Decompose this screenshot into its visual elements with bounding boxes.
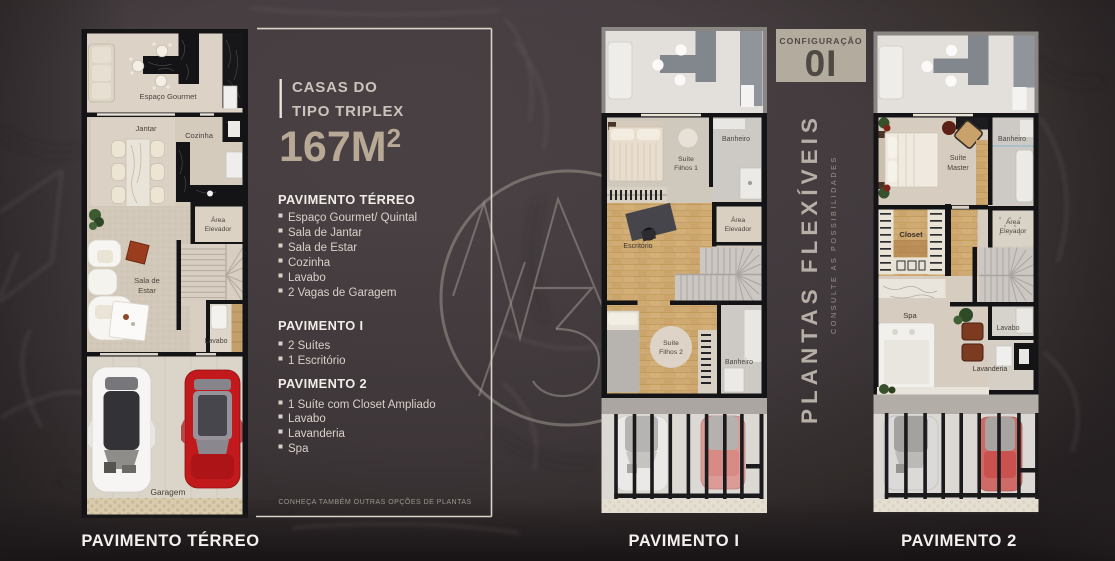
svg-text:Jantar: Jantar bbox=[135, 124, 157, 133]
svg-text:PAVIMENTO TÉRREO: PAVIMENTO TÉRREO bbox=[278, 192, 415, 207]
svg-text:Escritório: Escritório bbox=[623, 243, 652, 250]
svg-text:1 Escritório: 1 Escritório bbox=[288, 355, 346, 367]
svg-text:Espaço Gourmet: Espaço Gourmet bbox=[140, 92, 198, 101]
svg-text:Suíte: Suíte bbox=[663, 340, 679, 347]
svg-text:PAVIMENTO I: PAVIMENTO I bbox=[278, 318, 363, 333]
svg-text:Banheiro: Banheiro bbox=[998, 136, 1026, 143]
svg-text:Lavabo: Lavabo bbox=[288, 272, 326, 284]
svg-text:Sala de Jantar: Sala de Jantar bbox=[288, 227, 362, 239]
svg-text:Elevador: Elevador bbox=[725, 226, 753, 233]
svg-text:Lavabo: Lavabo bbox=[288, 413, 326, 425]
svg-text:0I: 0I bbox=[805, 43, 838, 84]
svg-text:1 Suíte com Closet Ampliado: 1 Suíte com Closet Ampliado bbox=[288, 399, 436, 411]
svg-text:CASAS DO: CASAS DO bbox=[292, 79, 378, 96]
svg-text:CONHEÇA TAMBÉM OUTRAS OPÇÕES D: CONHEÇA TAMBÉM OUTRAS OPÇÕES DE PLANTAS bbox=[278, 497, 471, 506]
svg-text:2 Suítes: 2 Suítes bbox=[288, 340, 330, 352]
svg-text:PAVIMENTO TÉRREO: PAVIMENTO TÉRREO bbox=[81, 531, 259, 550]
svg-text:Cozinha: Cozinha bbox=[288, 257, 331, 269]
svg-text:Closet: Closet bbox=[899, 230, 923, 239]
svg-text:Área: Área bbox=[211, 215, 226, 224]
svg-text:Lavanderia: Lavanderia bbox=[973, 366, 1008, 373]
svg-text:Banheiro: Banheiro bbox=[725, 359, 753, 366]
svg-text:PAVIMENTO I: PAVIMENTO I bbox=[628, 532, 739, 550]
svg-text:Banheiro: Banheiro bbox=[722, 136, 750, 143]
svg-text:Spa: Spa bbox=[903, 311, 917, 320]
svg-text:Suíte: Suíte bbox=[950, 155, 966, 162]
svg-text:PAVIMENTO 2: PAVIMENTO 2 bbox=[278, 376, 367, 391]
svg-text:Elevador: Elevador bbox=[205, 226, 233, 233]
svg-text:Elevador: Elevador bbox=[1000, 228, 1028, 235]
svg-text:Cozinha: Cozinha bbox=[185, 131, 214, 140]
svg-text:Estar: Estar bbox=[138, 286, 156, 295]
svg-text:Garagem: Garagem bbox=[151, 487, 186, 497]
svg-text:CONSULTE AS POSSIBILIDADES: CONSULTE AS POSSIBILIDADES bbox=[829, 155, 838, 334]
svg-text:Lavabo: Lavabo bbox=[997, 325, 1020, 332]
svg-text:2 Vagas de Garagem: 2 Vagas de Garagem bbox=[288, 287, 396, 299]
svg-text:Área: Área bbox=[731, 215, 746, 224]
svg-text:Filhos 2: Filhos 2 bbox=[659, 349, 683, 356]
svg-text:TIPO TRIPLEX: TIPO TRIPLEX bbox=[292, 103, 404, 120]
svg-text:Espaço Gourmet/ Quintal: Espaço Gourmet/ Quintal bbox=[288, 212, 417, 224]
svg-text:Lavabo: Lavabo bbox=[205, 338, 228, 345]
svg-text:Master: Master bbox=[947, 165, 969, 172]
svg-text:PAVIMENTO 2: PAVIMENTO 2 bbox=[901, 532, 1017, 550]
svg-text:Sala de Estar: Sala de Estar bbox=[288, 242, 357, 254]
svg-text:Filhos 1: Filhos 1 bbox=[674, 165, 698, 172]
svg-text:Suíte: Suíte bbox=[678, 156, 694, 163]
svg-text:Spa: Spa bbox=[288, 443, 309, 455]
svg-text:PLANTAS FLEXÍVEIS: PLANTAS FLEXÍVEIS bbox=[797, 113, 822, 424]
svg-text:167M2: 167M2 bbox=[279, 123, 401, 171]
svg-text:Lavanderia: Lavanderia bbox=[288, 428, 346, 440]
svg-text:Sala de: Sala de bbox=[134, 276, 160, 285]
svg-text:Área: Área bbox=[1006, 217, 1021, 226]
